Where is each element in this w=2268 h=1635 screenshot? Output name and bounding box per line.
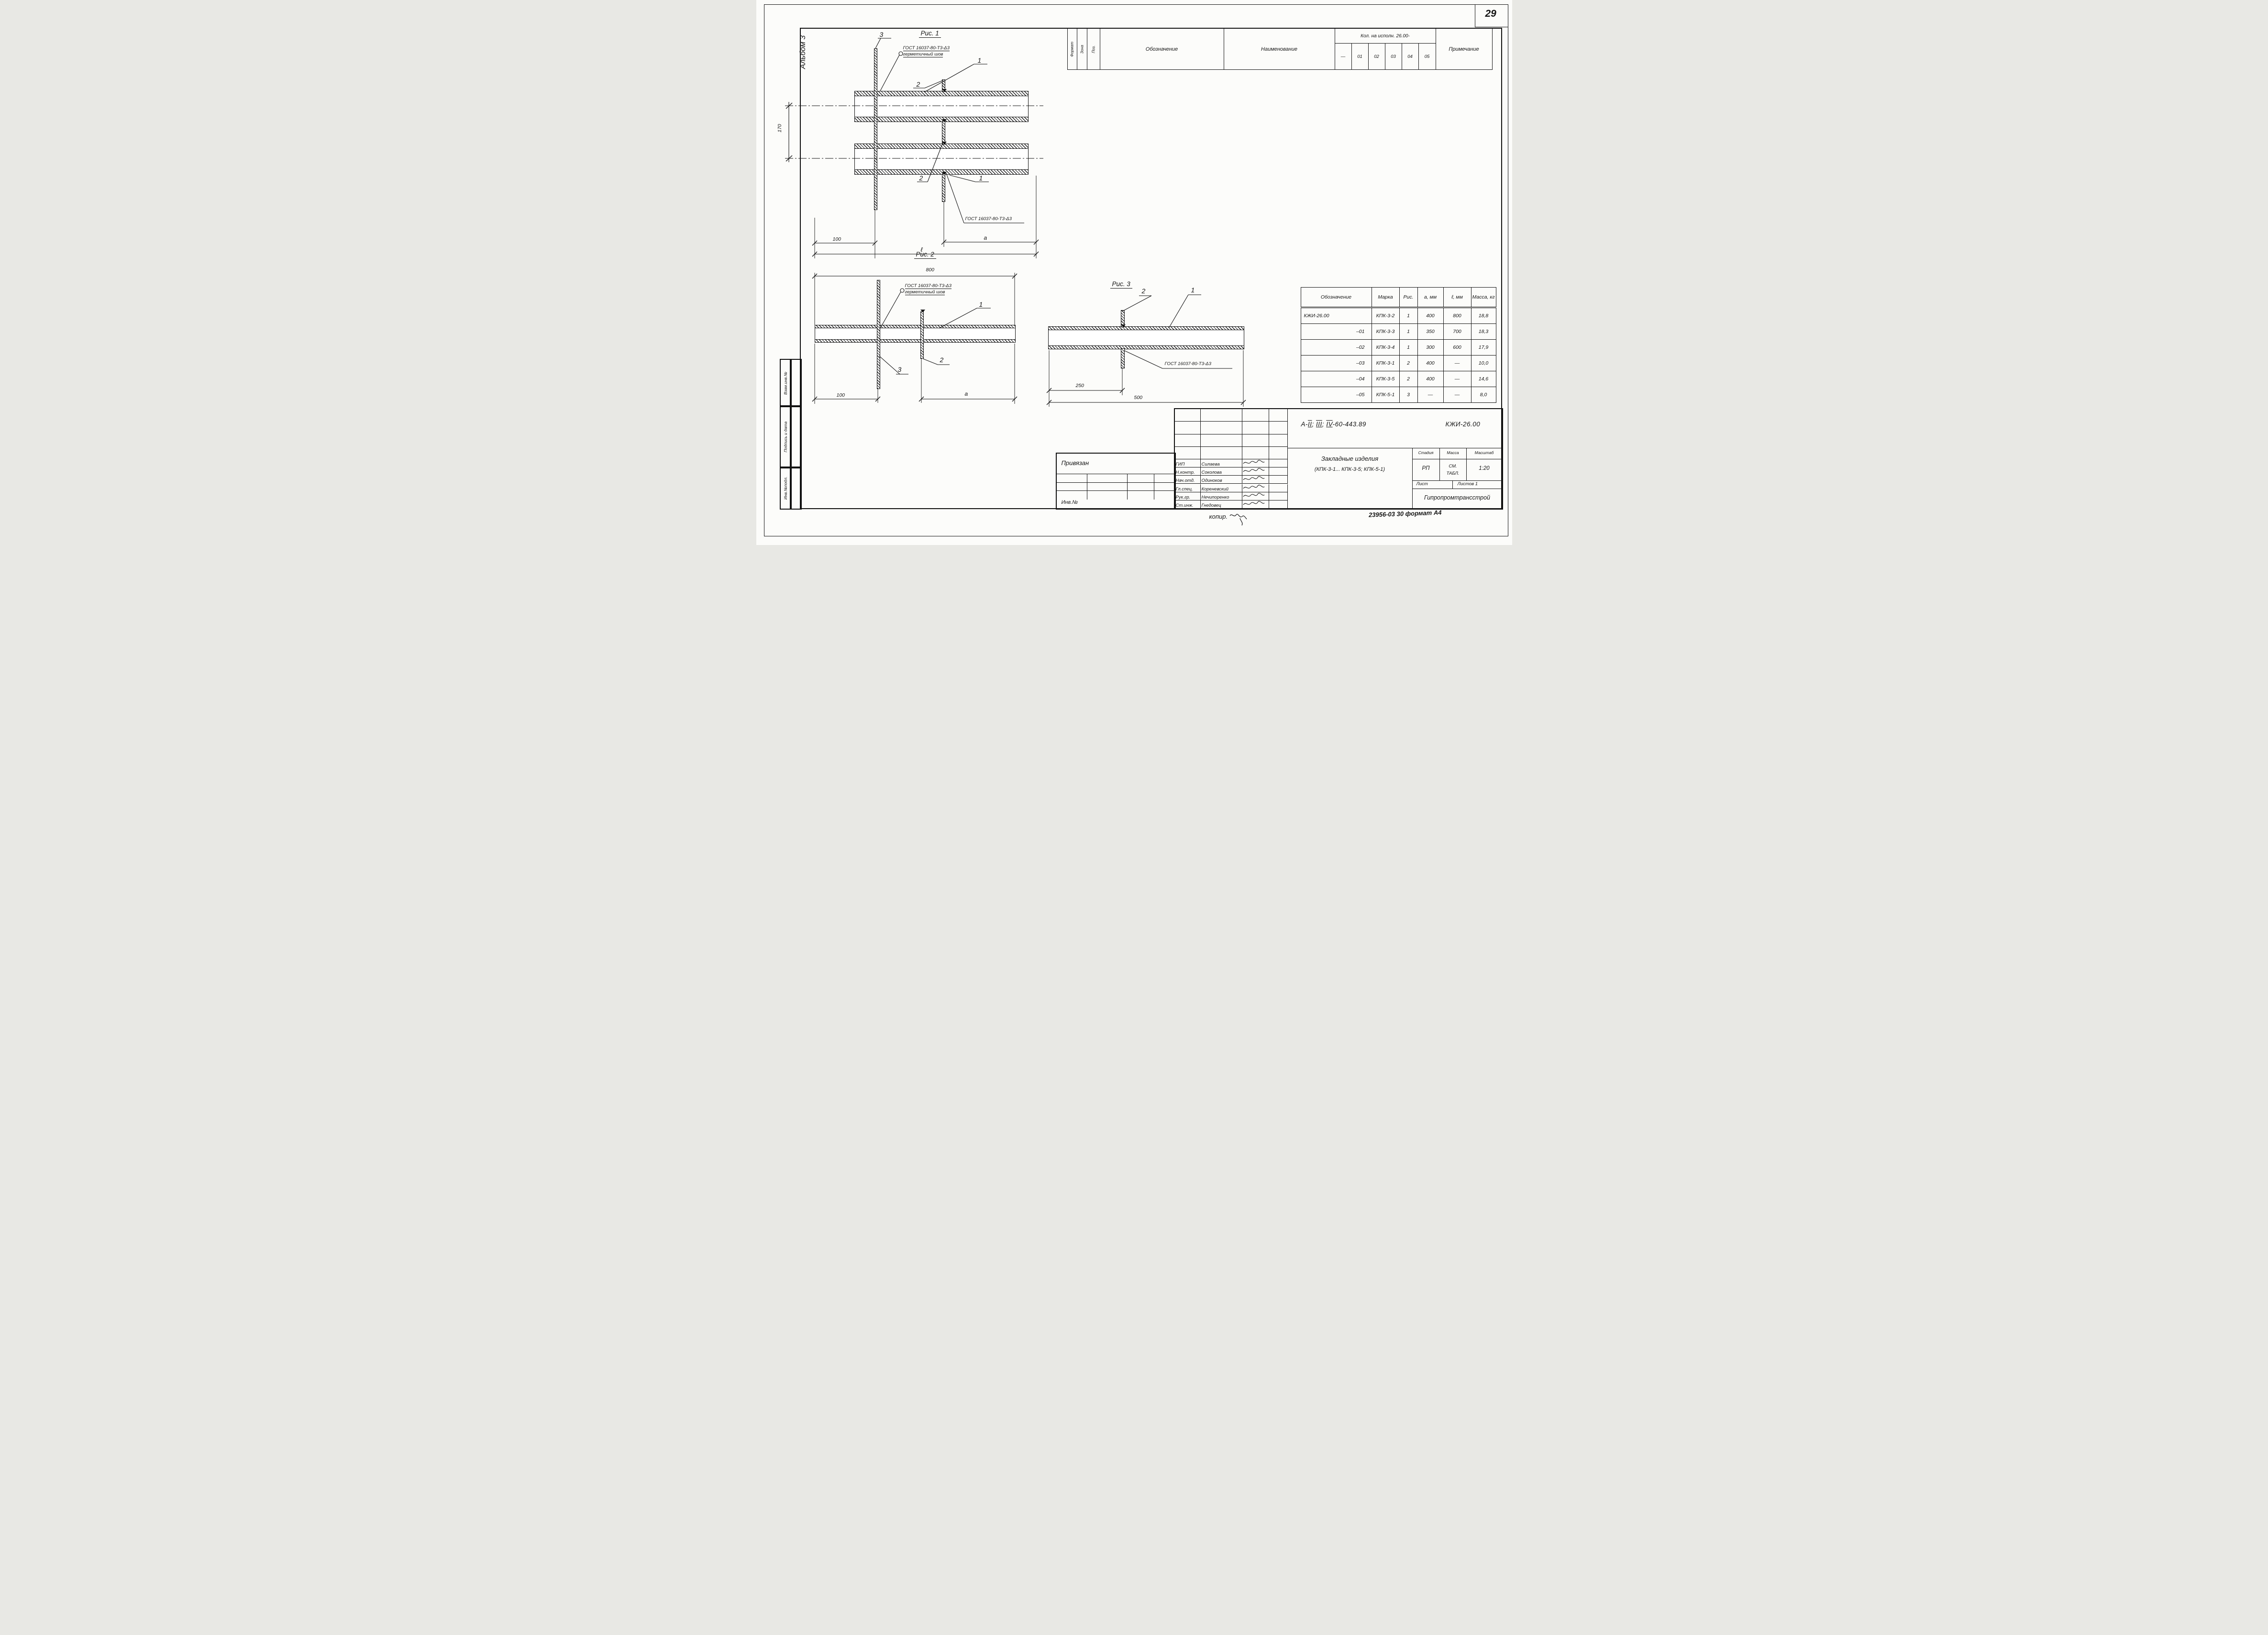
stage-value: РП: [1422, 466, 1429, 471]
fig1-dim-100: 100: [833, 236, 841, 242]
param-cell: КПК-3-5: [1372, 371, 1399, 387]
param-cell: 600: [1443, 340, 1471, 356]
col-qty-group: Кол. на исполн. 26.00-: [1335, 29, 1436, 44]
param-cell: 1: [1399, 324, 1417, 340]
fig3-bar-top: [1121, 310, 1125, 327]
revision-grid-cell: [1242, 434, 1269, 447]
fig1-gost-note: ГОСТ 16037-80-Т3-Δ3: [965, 216, 1012, 222]
fig1-label-pipe-a: 1: [978, 56, 982, 64]
signature-name: Одиноков: [1201, 476, 1242, 484]
revision-grid-cell: [1269, 409, 1288, 422]
signature-name: Гнедовец: [1201, 501, 1242, 509]
param-cell: 17,9: [1471, 340, 1496, 356]
signature-autograph: [1242, 476, 1269, 484]
specification-table: Формат Зона Поз. Обозначение Наименовани…: [1067, 28, 1493, 70]
fig3-label-pipe: 1: [1191, 286, 1195, 294]
revision-grid-cell: [1201, 447, 1242, 459]
fig1-bar-top: [942, 79, 945, 92]
fig3-bar-bottom: [1121, 348, 1125, 368]
param-cell: —: [1443, 387, 1471, 403]
param-cell: 800: [1443, 308, 1471, 324]
col-qty-05: 05: [1418, 44, 1436, 70]
col-name: Наименование: [1224, 29, 1335, 70]
param-cell: —: [1417, 387, 1443, 403]
signature-autograph: [1242, 501, 1269, 509]
fig2-label-plate: 3: [898, 366, 902, 373]
fig1-weld-gost: ГОСТ 16037-80-Т3-Δ3: [903, 45, 950, 51]
param-row: –05КПК-5-13——8,0: [1301, 387, 1496, 403]
mass-value: СМ. ТАБЛ.: [1445, 463, 1461, 477]
stage-value-cell: РП: [1413, 459, 1440, 481]
fig1-weld-note: герметичный шов: [903, 52, 943, 57]
fig2-weld-note: герметичный шов: [905, 289, 945, 295]
signature-role: Рук.гр.: [1175, 492, 1201, 501]
org-cell: Гипропромтрансстрой: [1413, 489, 1502, 509]
param-cell: КПК-3-4: [1372, 340, 1399, 356]
param-cell: 300: [1417, 340, 1443, 356]
signature-extra-cell: [1269, 484, 1288, 492]
param-cell: 2: [1399, 371, 1417, 387]
attach-label: Привязан: [1062, 459, 1089, 467]
fig3-dim-250: 250: [1076, 383, 1084, 389]
param-cell: 2: [1399, 356, 1417, 371]
param-cell: 400: [1417, 308, 1443, 324]
attach-grid-cell: [1087, 482, 1128, 491]
fig2-dim-a: а: [965, 390, 968, 397]
attach-grid-cell: [1057, 482, 1087, 491]
revision-grid-cell: [1201, 409, 1242, 422]
attach-grid-cell: [1154, 474, 1175, 483]
stack-cell-podpis-blank: [790, 405, 802, 468]
param-cell: КПК-3-3: [1372, 324, 1399, 340]
fig2-dim-100: 100: [837, 392, 845, 398]
signature-extra-cell: [1269, 476, 1288, 484]
signature-role: ГИП: [1175, 459, 1201, 467]
param-cell: 8,0: [1471, 387, 1496, 403]
col-designation: Обозначение: [1100, 29, 1224, 70]
param-cell: –02: [1301, 340, 1372, 356]
attach-grid-cell: [1127, 474, 1154, 483]
revision-grid-cell: [1201, 422, 1242, 434]
doc-title: Закладные изделия: [1321, 455, 1378, 462]
stack-label-inv: Инв.№подл.: [783, 477, 788, 500]
signature-name: Кореневский: [1201, 484, 1242, 492]
page-number: 29: [1485, 8, 1496, 20]
param-cell: —: [1443, 356, 1471, 371]
param-cell: 700: [1443, 324, 1471, 340]
fig3-title: Рис. 3: [1110, 280, 1132, 289]
param-cell: 350: [1417, 324, 1443, 340]
fig1-pipe-lower: [854, 144, 1029, 175]
revision-grid-cell: [1175, 422, 1201, 434]
album-label: Альбом 3: [799, 23, 808, 81]
signature-name: Соколова: [1201, 467, 1242, 476]
stack-label-vzam: Взам.инв.№: [783, 372, 788, 395]
col-pos: Поз.: [1087, 29, 1100, 70]
param-cell: 14,6: [1471, 371, 1496, 387]
param-cell: 1: [1399, 308, 1417, 324]
sheet-label: Лист: [1416, 481, 1428, 487]
attach-block: Привязан Инв.№: [1056, 453, 1176, 510]
param-row: –03КПК-3-12400—10,0: [1301, 356, 1496, 371]
param-col-mark: Марка: [1372, 288, 1399, 308]
param-cell: 400: [1417, 371, 1443, 387]
revision-grid-cell: [1269, 434, 1288, 447]
fig2-pipe: [815, 325, 1016, 343]
stack-label-podpis: Подпись и дата: [783, 422, 788, 452]
param-cell: КПК-5-1: [1372, 387, 1399, 403]
signature-role: Нач.отд.: [1175, 476, 1201, 484]
param-cell: 18,8: [1471, 308, 1496, 324]
fig3-label-bar: 2: [1142, 287, 1146, 295]
fig2-plate: [877, 280, 880, 389]
param-cell: 3: [1399, 387, 1417, 403]
signature-role: Ст.инж.: [1175, 501, 1201, 509]
signature-name: Силаева: [1201, 459, 1242, 467]
col-qty-01: 01: [1351, 44, 1368, 70]
fig1-label-bar-a: 2: [917, 80, 920, 88]
signature-extra-cell: [1269, 459, 1288, 467]
attach-grid-cell: [1154, 482, 1175, 491]
col-note: Примечание: [1436, 29, 1492, 70]
fig2-title: Рис. 2: [914, 251, 936, 259]
signature-autograph: [1242, 459, 1269, 467]
fig3-gost-note: ГОСТ 16037-80-Т3-Δ3: [1165, 361, 1211, 367]
param-col-a: а, мм: [1417, 288, 1443, 308]
signature-extra-cell: [1269, 467, 1288, 476]
drawing-sheet: 29 Альбом 3 Взам.инв.№ Подпись и дата Ин…: [756, 0, 1512, 545]
mass-value-cell: СМ. ТАБЛ.: [1440, 459, 1467, 481]
fig3-dim-500: 500: [1134, 395, 1143, 400]
stage-label: Стадия: [1418, 450, 1434, 455]
param-cell: –03: [1301, 356, 1372, 371]
param-col-designation: Обозначение: [1301, 288, 1372, 308]
param-row: КЖИ-26.00КПК-3-2140080018,8: [1301, 308, 1496, 324]
doc-number-cell: А-II; III; IV-60-443.89 КЖИ-26.00: [1288, 409, 1502, 448]
fig2-bar: [920, 311, 924, 359]
fig1-dim-a: а: [984, 234, 987, 241]
attach-inv-label: Инв.№: [1062, 500, 1078, 505]
scale-value: 1:20: [1479, 466, 1489, 471]
stack-cell-inv-blank: [790, 467, 802, 510]
signature-autograph: [1242, 492, 1269, 501]
fig2-dim-800: 800: [926, 267, 935, 273]
param-cell: –04: [1301, 371, 1372, 387]
col-qty-04: 04: [1402, 44, 1418, 70]
signature-autograph: [1242, 467, 1269, 476]
fig1-dim-170: 170: [776, 124, 782, 133]
revision-grid-cell: [1242, 447, 1269, 459]
doc-title-cell: Закладные изделия (КПК-3-1... КПК-3-5; К…: [1288, 448, 1413, 509]
revision-grid-cell: [1175, 409, 1201, 422]
col-format: Формат: [1067, 29, 1077, 70]
revision-grid-cell: [1269, 422, 1288, 434]
param-cell: –01: [1301, 324, 1372, 340]
scale-value-cell: 1:20: [1467, 459, 1502, 481]
fig2-weld-gost: ГОСТ 16037-80-Т3-Δ3: [905, 283, 951, 289]
attach-grid-cell: [1154, 490, 1175, 500]
attach-grid-cell: [1087, 474, 1128, 483]
fig1-pipe-upper: [854, 91, 1029, 122]
stack-cell-vzam-blank: [790, 359, 802, 407]
fig3-pipe: [1048, 326, 1244, 349]
fig1-label-plate: 3: [880, 31, 884, 38]
doc-number: А-II; III; IV-60-443.89: [1301, 421, 1366, 428]
attach-grid-cell: [1127, 482, 1154, 491]
sheet-cell: Лист: [1413, 481, 1453, 489]
col-qty-base: —: [1335, 44, 1351, 70]
param-cell: 10,0: [1471, 356, 1496, 371]
param-col-fig: Рис.: [1399, 288, 1417, 308]
revision-grid-cell: [1242, 422, 1269, 434]
org-name: Гипропромтрансстрой: [1424, 494, 1490, 501]
fig1-label-bar-b: 2: [919, 174, 923, 182]
param-cell: КЖИ-26.00: [1301, 308, 1372, 324]
fig1-title: Рис. 1: [919, 30, 941, 38]
param-row: –01КПК-3-3135070018,3: [1301, 324, 1496, 340]
attach-grid-cell: [1057, 474, 1087, 483]
attach-grid-cell: [1057, 490, 1087, 500]
attach-grid-cell: [1087, 490, 1128, 500]
revision-grid-cell: [1269, 447, 1288, 459]
param-col-mass: Масса, кг: [1471, 288, 1496, 308]
revision-grid-cell: [1175, 434, 1201, 447]
signature-autograph: [1242, 484, 1269, 492]
param-cell: —: [1443, 371, 1471, 387]
param-cell: 1: [1399, 340, 1417, 356]
sheets-label: Листов 1: [1458, 481, 1478, 487]
col-zone: Зона: [1077, 29, 1087, 70]
param-row: –02КПК-3-4130060017,9: [1301, 340, 1496, 356]
fig2-label-bar: 2: [940, 356, 944, 364]
mass-label-cell: Масса: [1440, 448, 1467, 459]
param-cell: 18,3: [1471, 324, 1496, 340]
col-qty-03: 03: [1385, 44, 1402, 70]
title-block: ГИПСилаеваН.контр.СоколоваНач.отд.Одинок…: [1174, 408, 1503, 510]
scale-label: Масштаб: [1475, 450, 1494, 455]
signature-name: Нечипоренко: [1201, 492, 1242, 501]
doc-code: КЖИ-26.00: [1446, 421, 1481, 428]
param-row: –04КПК-3-52400—14,6: [1301, 371, 1496, 387]
signature-role: Гл.спец.: [1175, 484, 1201, 492]
revision-grid-cell: [1201, 434, 1242, 447]
signature-extra-cell: [1269, 492, 1288, 501]
param-cell: 400: [1417, 356, 1443, 371]
fig1-bar-mid: [942, 121, 945, 145]
col-qty-02: 02: [1368, 44, 1385, 70]
param-cell: КПК-3-2: [1372, 308, 1399, 324]
sheets-cell: Листов 1: [1453, 481, 1502, 489]
fig1-bar-bottom: [942, 174, 945, 202]
fig1-label-pipe-b: 1: [979, 174, 983, 182]
param-col-l: ℓ, мм: [1443, 288, 1471, 308]
mass-label: Масса: [1447, 450, 1459, 455]
attach-grid-cell: [1127, 490, 1154, 500]
doc-subtitle: (КПК-3-1... КПК-3-5; КПК-5-1): [1315, 467, 1385, 472]
signature-role: Н.контр.: [1175, 467, 1201, 476]
scale-label-cell: Масштаб: [1467, 448, 1502, 459]
signature-extra-cell: [1269, 501, 1288, 509]
param-cell: –05: [1301, 387, 1372, 403]
copy-note: копир.: [1209, 513, 1228, 520]
revision-grid-cell: [1175, 447, 1201, 459]
fig2-label-pipe: 1: [979, 300, 983, 308]
parameter-table: Обозначение Марка Рис. а, мм ℓ, мм Масса…: [1301, 287, 1496, 403]
revision-grid-cell: [1242, 409, 1269, 422]
stage-label-cell: Стадия: [1413, 448, 1440, 459]
fig1-plate: [874, 48, 877, 210]
param-cell: КПК-3-1: [1372, 356, 1399, 371]
